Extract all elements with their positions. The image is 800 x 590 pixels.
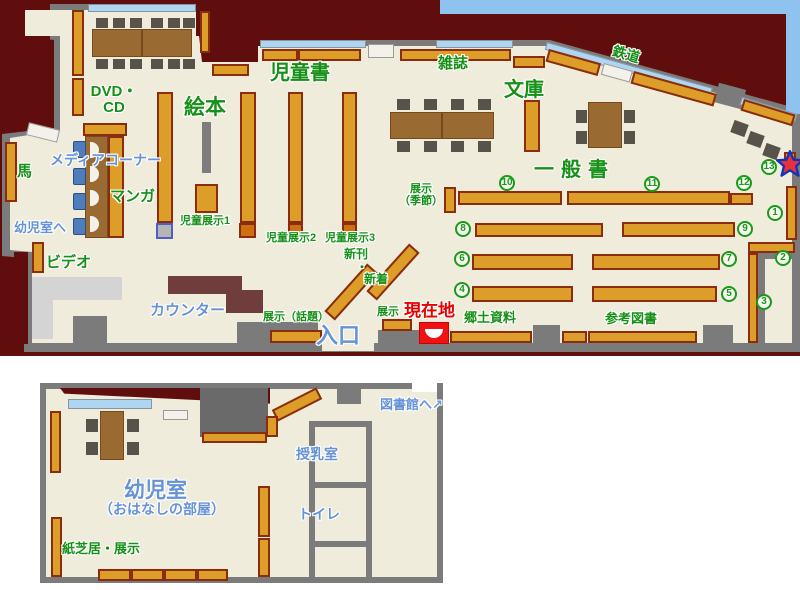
chair [127, 442, 139, 455]
window [260, 40, 366, 48]
label-reference-books: 参考図書 [605, 312, 657, 326]
section-label-bunko: 文庫 [504, 80, 544, 101]
annex-doorway [412, 378, 437, 392]
bookshelf [258, 486, 270, 537]
label-children-display3: 児童展示3 [325, 233, 375, 245]
chair [624, 110, 635, 123]
chair [576, 131, 587, 144]
label-display: 展示 [377, 307, 399, 319]
library-floor-map: DVD・ CD 絵本 児童書 雑誌 文庫 鉄道 一般書 メディアコーナー マンガ… [0, 0, 800, 590]
label-new-arrivals-2: 新着 [364, 273, 388, 286]
section-label-ippansho: 一般書 [534, 160, 615, 181]
label-display-topic: 展示（話題） [263, 312, 329, 324]
to-library-arrow-icon: ↗ [432, 397, 443, 412]
bookshelf-10 [458, 191, 562, 205]
section-label-zasshi: 雑誌 [438, 56, 468, 72]
shelf-number-6: 6 [454, 251, 470, 267]
bookshelf [202, 432, 267, 443]
bookshelf [262, 49, 298, 61]
label-new-arrivals-1: 新刊 [344, 248, 368, 261]
annex-entry-block [200, 388, 268, 437]
chair [576, 110, 587, 123]
label-to-infant-room: 幼児室へ [14, 221, 66, 235]
display-stand-children1 [195, 184, 218, 213]
reading-table [92, 29, 142, 57]
sign-board [202, 122, 211, 173]
bookshelf [164, 569, 197, 581]
video-shelf [32, 242, 44, 273]
shelf-endcap [239, 223, 256, 238]
bookshelf-1 [786, 186, 797, 240]
label-you-are-here: 現在地 [404, 302, 455, 320]
chair [130, 59, 142, 69]
shelf-number-7: 7 [721, 251, 737, 267]
label-to-library: 図書館へ↗ [380, 398, 443, 412]
section-label-jidosho: 児童書 [270, 63, 330, 84]
reading-table [588, 102, 622, 148]
bookshelf [50, 411, 61, 473]
staff-area [32, 277, 53, 339]
media-chair [73, 193, 86, 210]
chair [168, 59, 180, 69]
magazine-table [442, 112, 494, 139]
bookshelf [288, 92, 303, 223]
shelf-number-3: 3 [756, 294, 772, 310]
chair [86, 419, 98, 432]
section-label-video: ビデオ [46, 255, 91, 271]
section-label-media-corner: メディアコーナー [50, 153, 161, 168]
outside-strip-left-bottom [14, 252, 28, 344]
reading-table [142, 29, 192, 57]
chair [151, 59, 163, 69]
window [88, 4, 196, 12]
bookshelf [5, 142, 17, 202]
shelf-number-5: 5 [721, 286, 737, 302]
chair [96, 59, 108, 69]
shelf-number-2: 2 [775, 250, 791, 266]
chair [424, 141, 437, 152]
label-nursing-room: 授乳室 [296, 447, 338, 462]
chair [151, 18, 163, 28]
bookshelf [258, 538, 270, 577]
pillar [533, 325, 560, 346]
shelf-number-12: 12 [736, 175, 752, 191]
bookshelf [240, 92, 256, 223]
bookshelf [197, 569, 228, 581]
local-materials-shelf [450, 331, 532, 343]
chair [397, 99, 410, 110]
seasonal-display-shelf [444, 187, 456, 213]
label-children-display2: 児童展示2 [266, 233, 316, 245]
bookshelf [200, 11, 210, 53]
window-band-top [440, 0, 800, 14]
to-library-text: 図書館へ [380, 397, 432, 412]
reference-shelf [588, 331, 697, 343]
annex-floor-map: 幼児室 （おはなしの部屋） 紙芝居・展示 授乳室 トイレ 図書館へ↗ [0, 356, 800, 590]
counter-desk [226, 290, 263, 313]
display-shelf [382, 319, 412, 331]
pillar [378, 330, 420, 346]
bookshelf-4 [472, 286, 573, 302]
you-are-here-marker [419, 322, 449, 344]
bookshelf [342, 92, 357, 223]
chair [168, 18, 180, 28]
utility-box [163, 410, 188, 420]
chair [478, 141, 491, 152]
annex-table [100, 411, 124, 460]
chair [451, 99, 464, 110]
window [436, 40, 513, 48]
shelf-number-8: 8 [455, 221, 471, 237]
shelf-number-4: 4 [454, 282, 470, 298]
bookshelf [513, 56, 545, 68]
shelf-number-10: 10 [499, 175, 515, 191]
section-label-manga: マンガ [110, 189, 155, 205]
shelf-number-13: 13 [761, 159, 777, 175]
bookshelf [298, 49, 361, 61]
label-counter: カウンター [150, 303, 225, 319]
label-children-display1: 児童展示1 [180, 216, 230, 228]
bunko-shelf [524, 100, 540, 152]
you-are-here-arc [425, 329, 443, 338]
bookshelf [51, 517, 62, 577]
bookshelf [98, 569, 131, 581]
label-seasonal-display: 展示 （季節） [398, 184, 444, 207]
chair [424, 99, 437, 110]
shelf-number-9: 9 [737, 221, 753, 237]
chair [96, 18, 108, 28]
bookshelf-6 [472, 254, 573, 270]
main-floor-map: DVD・ CD 絵本 児童書 雑誌 文庫 鉄道 一般書 メディアコーナー マンガ… [0, 0, 800, 356]
bookshelf-7 [592, 254, 720, 270]
chair [113, 59, 125, 69]
media-shelf [83, 123, 127, 136]
chair [127, 419, 139, 432]
display-shelf-topic [270, 330, 322, 343]
bookshelf-5 [592, 286, 717, 302]
label-picture-story-display: 紙芝居・展示 [62, 542, 140, 556]
label-storytelling-room: （おはなしの部屋） [99, 502, 225, 517]
dvd-line1: DVD・ [91, 83, 138, 100]
partition-wall [366, 421, 372, 577]
section-label-ehon: 絵本 [184, 97, 226, 119]
bookshelf-11 [567, 191, 730, 205]
label-toilet: トイレ [298, 507, 340, 522]
shelf-number-11: 11 [644, 176, 660, 192]
star-icon [776, 150, 800, 178]
chair [451, 141, 464, 152]
partition-wall [309, 421, 372, 427]
utility-box [368, 44, 394, 58]
media-chair [73, 218, 86, 235]
section-label-dvd-cd: DVD・ CD [86, 84, 142, 116]
partition-wall [309, 421, 315, 577]
bookshelf-12 [730, 193, 753, 205]
chair [624, 131, 635, 144]
floor-pocket [25, 10, 60, 36]
pillar [73, 316, 107, 346]
annex-wall-block [337, 389, 361, 404]
seasonal-line2: （季節） [399, 195, 443, 207]
bookshelf [212, 64, 249, 76]
window-band-right [786, 0, 800, 114]
label-infant-room: 幼児室 [124, 480, 187, 502]
chair [86, 442, 98, 455]
partition-wall [309, 541, 372, 547]
reference-shelf [562, 331, 587, 343]
chair [130, 18, 142, 28]
label-local-materials: 郷土資料 [464, 311, 516, 325]
shelf-number-1: 1 [767, 205, 783, 221]
chair [478, 99, 491, 110]
bookshelf-8 [475, 223, 603, 237]
annex-window [68, 399, 152, 409]
shelf-endcap [156, 223, 173, 239]
bookshelf [72, 78, 84, 116]
chair [183, 18, 195, 28]
bookshelf [131, 569, 164, 581]
bookshelf [72, 10, 84, 76]
seasonal-line1: 展示 [410, 183, 432, 195]
media-chair [73, 168, 86, 185]
magazine-table [390, 112, 442, 139]
section-label-uma: 馬 [17, 164, 32, 180]
bookshelf [266, 416, 278, 437]
chair [113, 18, 125, 28]
bookshelf-9 [622, 222, 735, 237]
dvd-line2: CD [103, 99, 125, 116]
chair [183, 59, 195, 69]
partition-wall [309, 482, 372, 488]
pillar [703, 325, 733, 346]
chair [397, 141, 410, 152]
label-entrance: 入口 [316, 324, 360, 347]
